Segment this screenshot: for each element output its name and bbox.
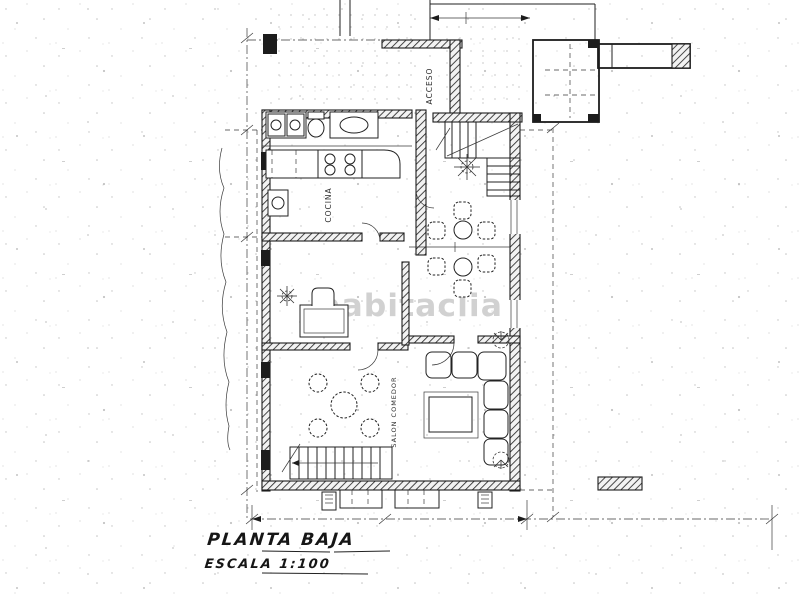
sofa-cushion [484, 439, 508, 465]
desk-chair [312, 288, 334, 306]
living-wall-b [478, 336, 520, 343]
hall-wall [402, 262, 409, 345]
cooktop-icon [318, 150, 362, 178]
bathroom-fixtures [266, 112, 378, 138]
label-salon-comedor: SALON COMEDOR [390, 376, 398, 447]
sofa-cushion [452, 352, 477, 378]
chair [454, 280, 471, 297]
chair [478, 255, 495, 272]
study-wall-a [262, 343, 350, 350]
toilet-icon [308, 119, 324, 137]
bottom-wall [262, 481, 520, 490]
sofa-cushion [426, 352, 451, 378]
plan-scale: ESCALA 1:100 [204, 557, 332, 572]
chair [428, 222, 445, 239]
chair [478, 222, 495, 239]
coffee-table [429, 397, 472, 432]
table-round [454, 221, 472, 239]
sofa-cushion [484, 381, 508, 409]
window-block [261, 362, 270, 378]
floor-plan-drawing: habitaclia [0, 0, 800, 600]
hall-divider-wall [416, 110, 426, 255]
sofa-cushion [484, 410, 508, 438]
round-table [331, 392, 357, 418]
label-cocina: COCINA [324, 187, 333, 222]
toilet-tank [308, 112, 324, 119]
scanned-floor-plan-page: habitaclia [0, 0, 800, 600]
window-block [261, 250, 270, 266]
exterior-wall-stub [598, 477, 642, 490]
chair-round [361, 419, 379, 437]
plant-icon [277, 286, 297, 306]
chair [454, 202, 471, 219]
table-round [454, 258, 472, 276]
chair-round [361, 374, 379, 392]
living-wall-a [404, 336, 454, 343]
kitchen-wall-a [262, 233, 362, 241]
basin-icon [340, 117, 368, 133]
chair-round [309, 374, 327, 392]
plan-title: PLANTA BAJA [206, 530, 356, 550]
chair [428, 258, 445, 275]
label-acceso: ACCESO [425, 68, 434, 105]
kitchen-wall-b [380, 233, 404, 241]
top-wall-right [433, 113, 522, 122]
sofa-corner [478, 352, 506, 380]
pillar [263, 34, 277, 54]
chair-round [309, 419, 327, 437]
desk [300, 305, 348, 337]
window-block [261, 450, 270, 470]
entry-side-wall [450, 40, 460, 118]
